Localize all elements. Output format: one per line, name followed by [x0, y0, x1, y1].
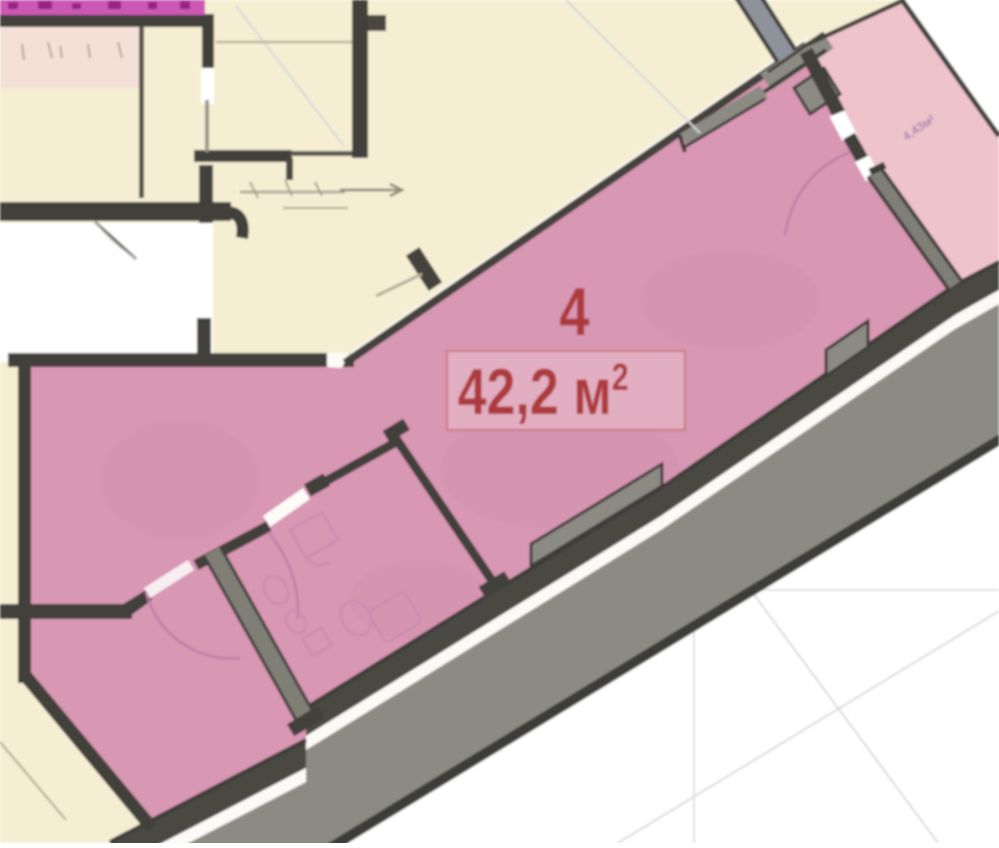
svg-text:4: 4: [559, 274, 589, 350]
svg-text:42,2 м2: 42,2 м2: [458, 357, 629, 429]
